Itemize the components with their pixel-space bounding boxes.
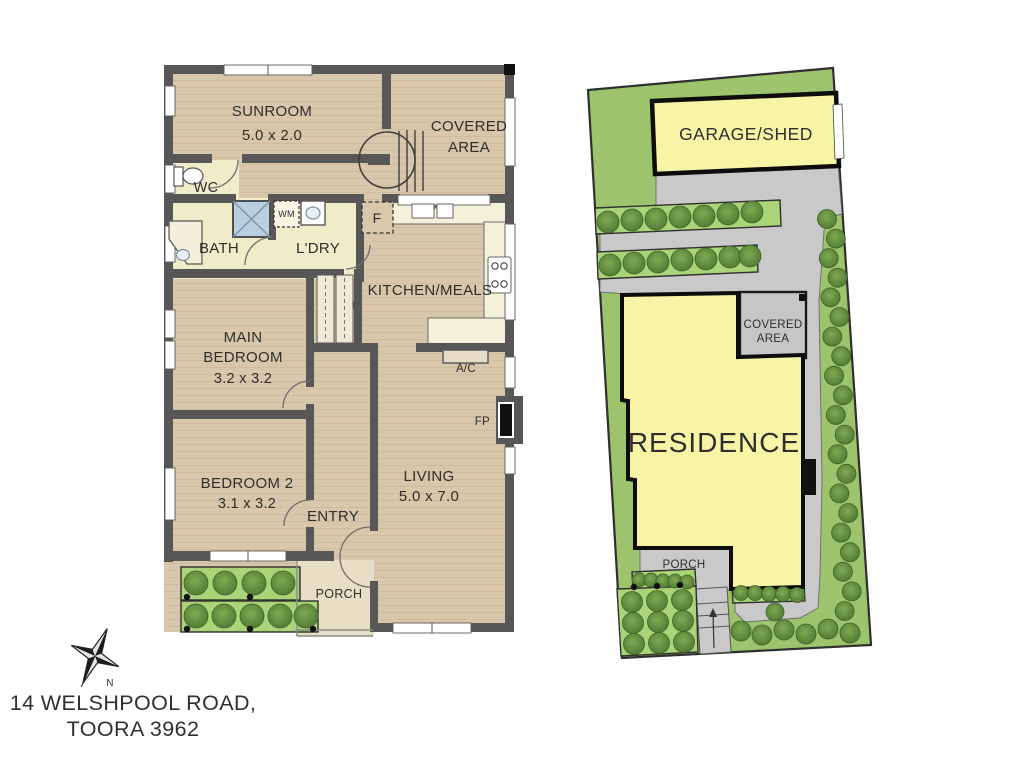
label-residence: RESIDENCE xyxy=(628,427,800,458)
label-ac: A/C xyxy=(456,363,476,375)
tree-icon xyxy=(268,604,292,628)
tree-icon xyxy=(828,445,847,464)
tree-icon xyxy=(695,248,717,270)
compass-icon xyxy=(57,618,131,698)
label-site-covered-2: AREA xyxy=(757,333,790,345)
post-dot-icon xyxy=(631,584,637,590)
label-entry: ENTRY xyxy=(307,508,359,525)
tree-icon xyxy=(825,366,844,385)
address-line-1: 14 WELSHPOOL ROAD, xyxy=(10,691,257,715)
tree-icon xyxy=(672,590,693,611)
address-line-2: TOORA 3962 xyxy=(67,717,200,741)
sink-icon xyxy=(412,204,453,218)
tree-icon xyxy=(832,347,851,366)
post-dot-icon xyxy=(247,626,253,632)
post-dot-icon xyxy=(654,583,660,589)
washing-machine-icon: WM xyxy=(274,201,299,227)
tree-icon xyxy=(842,582,861,601)
post-dot-icon xyxy=(184,594,190,600)
label-site-covered-1: COVERED xyxy=(744,319,803,331)
tree-icon xyxy=(741,201,763,223)
post-dot-icon xyxy=(247,594,253,600)
shower-icon xyxy=(233,201,270,237)
tree-icon xyxy=(826,406,845,425)
label-covered-2: AREA xyxy=(448,139,490,156)
tree-icon xyxy=(830,308,849,327)
tree-icon xyxy=(796,624,816,644)
entry-steps xyxy=(696,587,731,654)
label-sunroom-dim: 5.0 x 2.0 xyxy=(242,127,302,144)
tree-icon xyxy=(752,625,772,645)
tree-icon xyxy=(832,523,851,542)
fireplace xyxy=(496,396,523,444)
svg-text:F: F xyxy=(373,210,382,226)
tree-icon xyxy=(647,251,669,273)
tree-icon xyxy=(840,543,859,562)
tree-icon xyxy=(623,613,644,634)
tree-icon xyxy=(621,209,643,231)
floorplan-canvas: WM F xyxy=(0,0,1024,768)
label-main-bedroom-1: MAIN xyxy=(224,329,263,346)
tree-icon xyxy=(837,464,856,483)
tree-icon xyxy=(762,587,777,602)
tree-icon xyxy=(671,249,693,271)
tree-icon xyxy=(839,504,858,523)
post-dot-icon xyxy=(310,626,316,632)
tree-icon xyxy=(774,620,794,640)
tree-icon xyxy=(242,571,266,595)
label-main-bedroom-2: BEDROOM xyxy=(203,349,283,366)
label-garage: GARAGE/SHED xyxy=(679,124,813,144)
label-north: N xyxy=(106,678,114,689)
tree-icon xyxy=(693,205,715,227)
tree-icon xyxy=(734,586,749,601)
tree-icon xyxy=(622,592,643,613)
post-dot-icon xyxy=(677,582,683,588)
tree-icon xyxy=(647,591,668,612)
tree-icon xyxy=(624,634,645,655)
label-bath: BATH xyxy=(199,240,239,257)
label-bedroom2-dim: 3.1 x 3.2 xyxy=(218,496,276,512)
garage-gate xyxy=(833,104,844,159)
tree-icon xyxy=(776,587,791,602)
tree-icon xyxy=(739,245,761,267)
label-laundry: L'DRY xyxy=(296,240,340,257)
tree-icon xyxy=(828,268,847,287)
tree-icon xyxy=(623,252,645,274)
ac-unit xyxy=(443,350,488,363)
tree-icon xyxy=(833,386,852,405)
tree-icon xyxy=(597,211,619,233)
label-fp: FP xyxy=(475,416,490,428)
tree-icon xyxy=(835,602,854,621)
tree-icon xyxy=(673,611,694,632)
tree-icon xyxy=(648,612,669,633)
tree-icon xyxy=(645,208,667,230)
label-covered-1: COVERED xyxy=(431,118,507,135)
tree-icon xyxy=(840,623,860,643)
tree-icon xyxy=(649,633,670,654)
site-fireplace xyxy=(801,459,816,495)
svg-text:WM: WM xyxy=(278,209,295,219)
label-site-porch: PORCH xyxy=(662,559,705,571)
tree-icon xyxy=(819,249,838,268)
label-main-bedroom-dim: 3.2 x 3.2 xyxy=(214,371,272,387)
label-living-dim: 5.0 x 7.0 xyxy=(399,488,459,505)
tree-icon xyxy=(212,604,236,628)
tree-icon xyxy=(731,621,751,641)
fridge-icon: F xyxy=(362,202,393,233)
tree-icon xyxy=(599,254,621,276)
laundry-trough-icon xyxy=(301,201,325,225)
tree-icon xyxy=(184,604,208,628)
tree-icon xyxy=(818,619,838,639)
tree-icon xyxy=(830,484,849,503)
tree-icon xyxy=(294,604,318,628)
tree-icon xyxy=(748,586,763,601)
tree-icon xyxy=(717,203,739,225)
tree-icon xyxy=(766,603,784,621)
tree-icon xyxy=(674,632,695,653)
floorplan-page: WM F xyxy=(0,0,1024,768)
label-bedroom2: BEDROOM 2 xyxy=(201,475,294,492)
tree-icon xyxy=(826,229,845,248)
tree-icon xyxy=(823,327,842,346)
tree-icon xyxy=(821,288,840,307)
tree-icon xyxy=(213,571,237,595)
label-kitchen: KITCHEN/MEALS xyxy=(368,282,493,299)
tree-icon xyxy=(240,604,264,628)
label-porch: PORCH xyxy=(316,587,363,601)
tree-icon xyxy=(833,562,852,581)
tree-icon xyxy=(669,206,691,228)
label-wc: WC xyxy=(194,180,219,196)
tree-icon xyxy=(271,571,295,595)
post-marker xyxy=(504,64,515,75)
tree-icon xyxy=(818,210,837,229)
tree-icon xyxy=(184,571,208,595)
tree-icon xyxy=(719,246,741,268)
tree-icon xyxy=(790,588,805,603)
floor-plan: WM F xyxy=(164,64,523,636)
post-dot-icon xyxy=(184,626,190,632)
tree-icon xyxy=(835,425,854,444)
label-sunroom: SUNROOM xyxy=(232,103,312,120)
label-living: LIVING xyxy=(404,468,455,485)
